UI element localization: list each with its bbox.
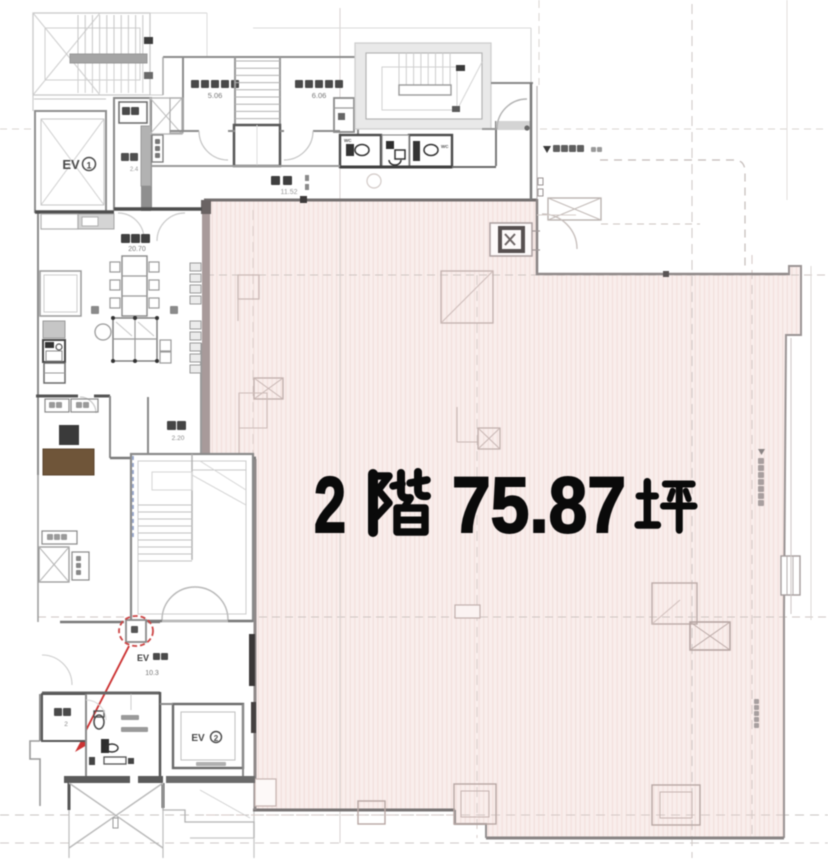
svg-text:EV: EV — [191, 733, 205, 744]
svg-text:75.87: 75.87 — [452, 460, 626, 549]
svg-text:20.70: 20.70 — [128, 246, 146, 253]
svg-text:11.52: 11.52 — [281, 189, 298, 196]
svg-text:WC: WC — [441, 144, 449, 149]
svg-text:EV: EV — [137, 653, 149, 663]
svg-text:10.3: 10.3 — [145, 670, 159, 677]
svg-text:1: 1 — [86, 161, 91, 171]
svg-text:5.06: 5.06 — [208, 91, 223, 100]
svg-text:2: 2 — [214, 734, 219, 743]
svg-text:WC: WC — [344, 138, 352, 143]
svg-text:2.20: 2.20 — [172, 435, 185, 442]
svg-text:2.4: 2.4 — [130, 167, 139, 173]
svg-text:2: 2 — [64, 721, 68, 728]
svg-text:2: 2 — [314, 460, 346, 549]
svg-text:EV: EV — [62, 157, 80, 172]
svg-text:6.06: 6.06 — [312, 91, 327, 100]
